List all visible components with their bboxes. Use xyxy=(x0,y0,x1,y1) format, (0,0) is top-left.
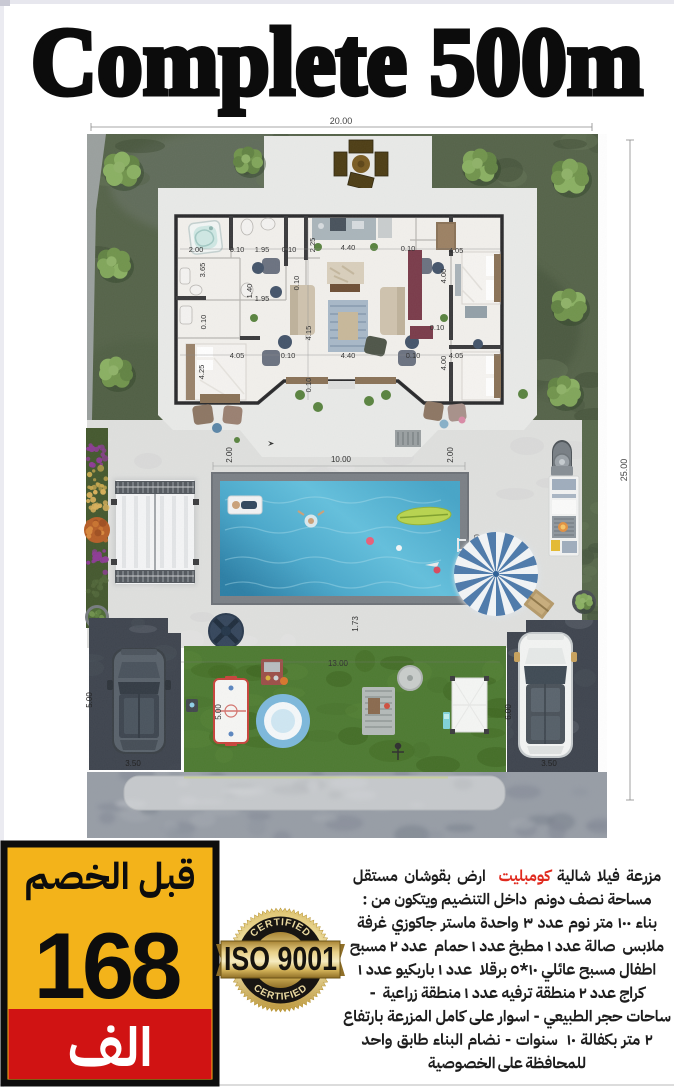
svg-text:ISO 9001: ISO 9001 xyxy=(224,940,337,977)
svg-text:25.00: 25.00 xyxy=(619,459,629,482)
svg-text:Complete 500m: Complete 500m xyxy=(31,8,643,115)
svg-text:20.00: 20.00 xyxy=(330,116,353,126)
svg-text:168: 168 xyxy=(34,913,181,1018)
